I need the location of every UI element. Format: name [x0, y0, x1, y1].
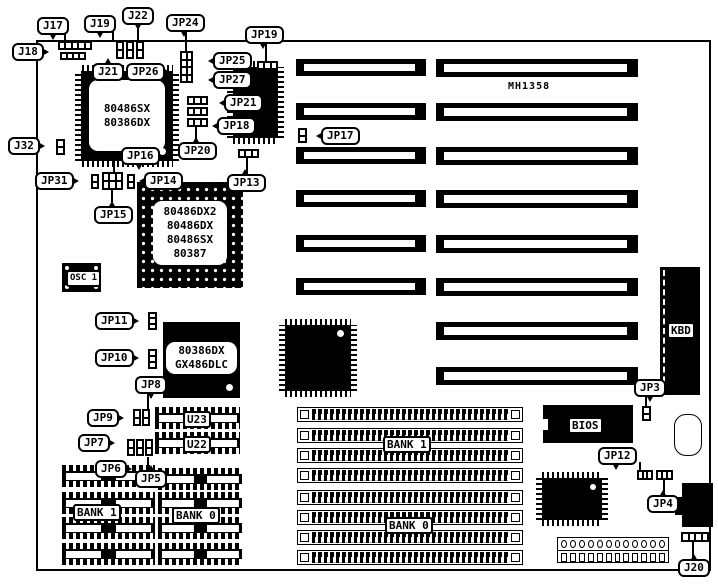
isa-slot	[436, 103, 638, 121]
jumper-jp31	[91, 174, 99, 189]
simm-slot	[297, 490, 523, 505]
isa-slot	[436, 147, 638, 165]
callout-jp12: JP12	[598, 447, 637, 465]
jumper-jp18	[187, 107, 208, 116]
callout-jp26: JP26	[126, 63, 165, 81]
chipset-qfp-pins	[233, 138, 278, 144]
header-j18	[60, 52, 86, 60]
isa-slot	[296, 59, 426, 76]
isa-slot	[296, 190, 426, 207]
dlc-chip-label: 80386DX GX486DLC	[166, 342, 237, 374]
callout-jp5: JP5	[135, 470, 167, 488]
isa-slot	[436, 278, 638, 296]
jumper-j22	[136, 41, 144, 59]
jumper-jp24-jp25-jp27	[180, 51, 193, 83]
jumper-jp15-jp16	[102, 172, 123, 190]
callout-jp8: JP8	[135, 376, 167, 394]
callout-jp31: JP31	[35, 172, 74, 190]
callout-j18: J18	[12, 43, 44, 61]
qfp-cpu-label: 80486SX 80386DX	[89, 80, 165, 151]
jumper-jp13	[238, 149, 259, 158]
callout-j21: J21	[92, 63, 124, 81]
pga-cpu-line3: 80486SX	[167, 233, 213, 247]
jumper-jp9	[133, 409, 141, 426]
callout-jp24: JP24	[166, 14, 205, 32]
plcc-pin1-dot	[590, 484, 596, 490]
callout-jp6: JP6	[95, 460, 127, 478]
callout-jp17: JP17	[321, 127, 360, 145]
isa-slot	[296, 103, 426, 120]
simm-slot	[297, 550, 523, 565]
header-j17	[58, 41, 92, 50]
bank0-simm-label: BANK 0	[385, 517, 433, 534]
chipset-qfp-pins	[278, 67, 284, 138]
isa-slot	[436, 235, 638, 253]
jumper-jp10	[148, 349, 157, 369]
jumper-jp3	[642, 406, 651, 421]
power-connector	[557, 537, 669, 563]
dip-bank-row	[158, 543, 242, 565]
u22-label: U22	[183, 436, 211, 453]
callout-j32: J32	[8, 137, 40, 155]
pga-cpu-line1: 80486DX2	[164, 205, 217, 219]
isa-slot	[436, 59, 638, 77]
jumper-j32	[56, 139, 65, 155]
isa-slot	[296, 278, 426, 295]
dlc-line1: 80386DX	[178, 344, 224, 358]
bios-label: BIOS	[568, 417, 603, 434]
pga-cpu-line4: 80387	[173, 247, 206, 261]
din-connector	[682, 483, 713, 527]
callout-jp21: JP21	[224, 94, 263, 112]
qfp-cpu-pin1-dot	[159, 148, 166, 155]
center-qfp-pins	[351, 325, 357, 391]
u23-label: U23	[183, 411, 211, 428]
jumper-jp17	[298, 128, 307, 143]
jumper-jp20	[187, 118, 208, 127]
qfp-cpu-line2: 80386DX	[104, 116, 150, 130]
callout-j17: J17	[37, 17, 69, 35]
board-model-text: MH1358	[508, 81, 550, 92]
qfp-cpu-line1: 80486SX	[104, 102, 150, 116]
dip-bank-row	[158, 468, 242, 490]
callout-jp11: JP11	[95, 312, 134, 330]
callout-jp3: JP3	[634, 379, 666, 397]
callout-jp18: JP18	[217, 117, 256, 135]
callout-jp27: JP27	[213, 71, 252, 89]
isa-slot	[296, 147, 426, 164]
jumper-jp12-a	[637, 470, 653, 480]
jumper-jp7	[127, 439, 135, 456]
callout-j19: J19	[84, 15, 116, 33]
oscillator-label: OSC 1	[66, 270, 101, 287]
jumper-jp14	[127, 174, 135, 189]
callout-jp14: JP14	[144, 172, 183, 190]
callout-j20: J20	[678, 559, 710, 577]
callout-jp16: JP16	[121, 147, 160, 165]
callout-jp13: JP13	[227, 174, 266, 192]
dip-bank-row	[62, 543, 155, 565]
plcc-chip-pins	[542, 520, 602, 526]
center-qfp-pins	[285, 391, 351, 397]
bank1-simm-label: BANK 1	[383, 436, 431, 453]
simm-slot	[297, 468, 523, 483]
dlc-pin1-dot	[226, 384, 233, 391]
jumper-j19-j22	[126, 41, 134, 59]
callout-j22: J22	[122, 7, 154, 25]
pga-cpu-line2: 80486DX	[167, 219, 213, 233]
motherboard-diagram: MH1358 80486SX 80386DX 80486DX2 80486DX …	[0, 0, 718, 584]
center-qfp-pin1-dot	[337, 330, 344, 337]
isa-slot	[296, 235, 426, 252]
jumper-jp11	[148, 312, 157, 330]
callout-jp15: JP15	[94, 206, 133, 224]
jumper-j19	[116, 41, 124, 59]
kbd-label: KBD	[667, 322, 695, 339]
battery	[674, 414, 702, 456]
plcc-chip-pins	[602, 478, 608, 520]
jumper-jp19	[257, 61, 278, 70]
callout-jp19: JP19	[245, 26, 284, 44]
callout-jp7: JP7	[78, 434, 110, 452]
callout-jp9: JP9	[87, 409, 119, 427]
pga-cpu-label: 80486DX2 80486DX 80486SX 80387	[153, 201, 227, 265]
jumper-jp12-b	[656, 470, 673, 480]
isa-slot	[436, 367, 638, 385]
simm-slot	[297, 407, 523, 422]
jumper-jp21	[187, 96, 208, 105]
dlc-line2: GX486DLC	[175, 358, 228, 372]
bank1-dip-label: BANK 1	[73, 504, 121, 521]
jumper-jp6	[136, 439, 144, 456]
isa-slot	[436, 190, 638, 208]
callout-jp25: JP25	[213, 52, 252, 70]
isa-slot	[436, 322, 638, 340]
jumper-jp8	[142, 409, 150, 426]
callout-jp4: JP4	[647, 495, 679, 513]
header-j20	[681, 532, 709, 542]
bank0-dip-label: BANK 0	[172, 507, 220, 524]
jumper-jp5	[145, 439, 153, 456]
callout-jp20: JP20	[178, 142, 217, 160]
callout-jp10: JP10	[95, 349, 134, 367]
